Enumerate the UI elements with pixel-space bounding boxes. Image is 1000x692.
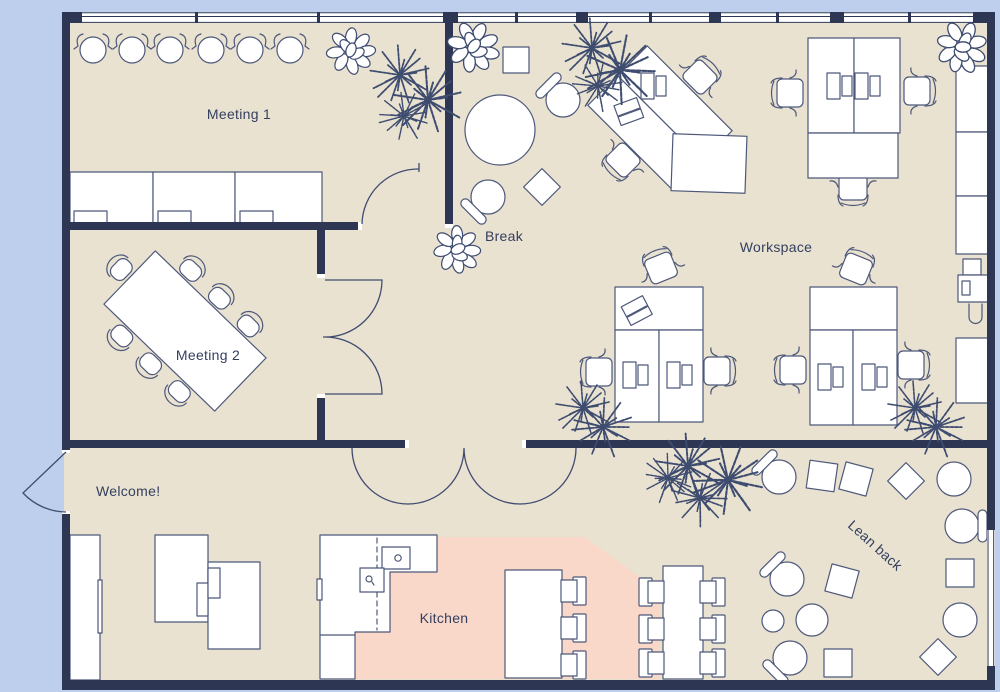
dining-chair	[700, 649, 725, 677]
dining-chair	[561, 614, 586, 642]
dining-chair	[639, 578, 664, 606]
reception-cabinet-handle	[98, 580, 102, 633]
label-break: Break	[485, 228, 524, 244]
dining-chair	[700, 578, 725, 606]
cabinet	[956, 196, 988, 254]
pouf-square	[824, 649, 852, 677]
meeting1-table-chair	[240, 211, 273, 223]
kitchen-sink	[382, 547, 410, 569]
cabinet	[956, 132, 988, 196]
wall-inner	[445, 23, 453, 228]
kitchen-stove	[360, 568, 384, 592]
wall-inner	[522, 440, 987, 448]
desk	[671, 134, 747, 194]
wall-left	[62, 12, 70, 450]
kitchen-island-table	[505, 570, 562, 678]
wall-inner	[317, 230, 325, 278]
break-round-table	[465, 95, 535, 165]
wall-inner	[62, 222, 362, 230]
dining-chair	[700, 615, 725, 643]
wall-bottom	[62, 680, 995, 690]
label-meeting2: Meeting 2	[176, 347, 240, 363]
meeting1-table-chair	[74, 211, 107, 223]
tub-chair	[945, 509, 987, 543]
dining-chair	[561, 651, 586, 679]
pouf-round	[937, 462, 971, 496]
meeting1-table-chair	[158, 211, 191, 223]
reception-cabinet	[70, 535, 100, 680]
pouf-square	[806, 460, 838, 492]
pouf-square	[946, 559, 974, 587]
dining-chair	[561, 577, 586, 605]
dining-chair	[639, 615, 664, 643]
dining-chair	[639, 649, 664, 677]
label-kitchen: Kitchen	[420, 610, 469, 626]
break-side-table	[503, 47, 529, 73]
floor-plan: Meeting 1 Meeting 2 Break Workspace Welc…	[0, 0, 1000, 692]
wall-inner	[62, 440, 409, 448]
wall-pier	[709, 12, 721, 23]
wall-pier	[443, 12, 458, 23]
label-workspace: Workspace	[740, 239, 812, 255]
dining-table	[663, 566, 703, 679]
wall-inner	[317, 394, 325, 443]
cabinet	[956, 66, 988, 132]
pouf-round	[943, 603, 977, 637]
wall-pier	[830, 12, 844, 23]
cabinet	[956, 338, 988, 403]
wall-right	[987, 12, 995, 530]
pouf-round	[762, 610, 784, 632]
reception-chair	[208, 568, 220, 598]
kitchen-counter-handle	[317, 579, 322, 600]
label-meeting1: Meeting 1	[207, 106, 271, 122]
label-welcome: Welcome!	[96, 483, 160, 499]
wall-left	[62, 514, 70, 690]
pouf-round	[796, 604, 828, 636]
wall-pier	[576, 12, 588, 23]
reception-chair	[197, 583, 208, 616]
